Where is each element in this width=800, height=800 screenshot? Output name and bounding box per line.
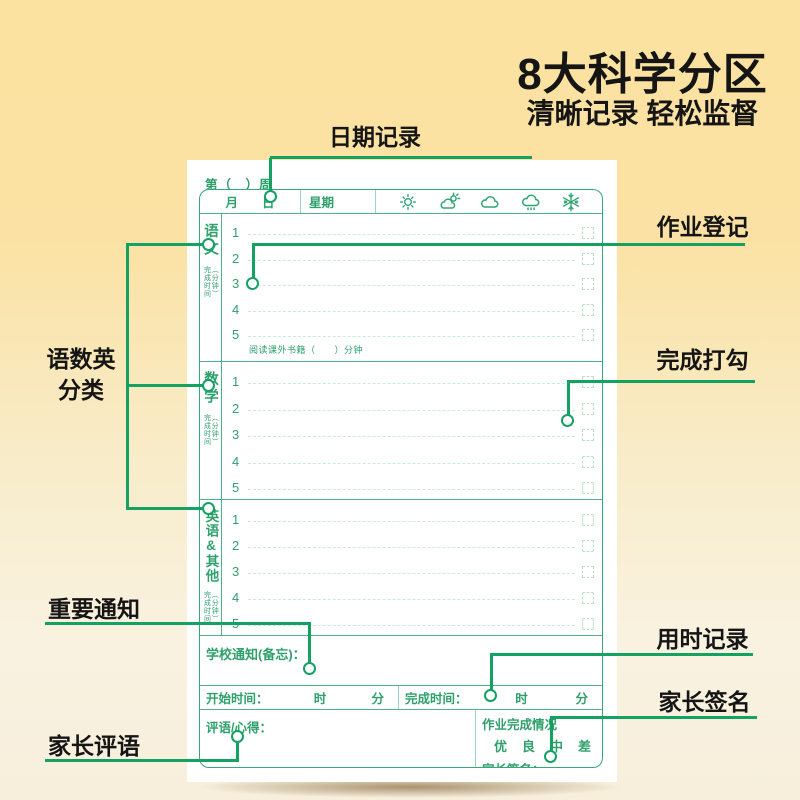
homework-row: 3 [222, 417, 602, 443]
callout-subjects-label: 语数英 分类 [25, 344, 137, 406]
homework-rows: 12345阅读课外书籍（ ）分钟 [222, 214, 602, 361]
row-number: 2 [232, 539, 246, 552]
write-line [248, 463, 575, 464]
callout-notice-connector [308, 624, 311, 663]
homework-row: 3 [222, 554, 602, 580]
option-good: 良 [522, 736, 535, 755]
snowflake-icon [561, 192, 581, 212]
checkbox-icon [582, 429, 594, 441]
callout-time-label: 用时记录 [640, 624, 765, 655]
homework-row: 2 [222, 390, 602, 416]
hour-label: 时 [515, 688, 528, 707]
start-time-label: 开始时间： [206, 688, 269, 707]
cloud-icon [478, 192, 502, 212]
callout-subjects-circle-1 [202, 238, 215, 251]
homework-row: 1 [222, 502, 602, 528]
callout-parent-sign-connector [550, 718, 553, 751]
callout-time-circle [484, 689, 497, 702]
end-time-cell: 完成时间： 时 分 [399, 686, 602, 709]
checkbox-icon [582, 253, 594, 265]
weekday-label: 星期 [309, 192, 334, 211]
row-number: 4 [232, 303, 246, 316]
write-line [248, 436, 575, 437]
write-line [248, 410, 575, 411]
callout-parent-sign-underline [550, 716, 757, 719]
row-number: 3 [232, 565, 246, 578]
callout-date-label: 日期记录 [280, 122, 470, 153]
checkbox-icon [582, 329, 594, 341]
callout-check-underline [567, 380, 755, 383]
time-note-unit: （分钟） [211, 266, 219, 298]
date-header-row: 月 日 星期 [200, 190, 602, 214]
homework-rows: 12345 [222, 500, 602, 635]
weekday-cell: 星期 [301, 190, 376, 213]
checkbox-icon [582, 482, 594, 494]
completion-options: 优 良 中 差 [482, 736, 602, 755]
row-number: 5 [232, 328, 246, 341]
sun-icon [397, 192, 419, 212]
month-day-cell: 月 日 [200, 190, 301, 213]
write-line [248, 547, 575, 548]
callout-parent-comment-circle [231, 730, 244, 743]
checkbox-icon [582, 227, 594, 239]
write-line [248, 260, 575, 261]
row-number: 4 [232, 455, 246, 468]
callout-homework-circle [246, 277, 259, 290]
write-line [248, 383, 575, 384]
callout-subjects-branch-3 [127, 507, 204, 510]
homework-row: 2 [222, 528, 602, 554]
hour-label: 时 [314, 688, 327, 707]
write-line [248, 625, 575, 626]
checkbox-icon [582, 566, 594, 578]
checkbox-icon [582, 540, 594, 552]
callout-parent-comment-label: 家长评语 [35, 731, 153, 762]
parent-sign-label: 家长签名： [482, 759, 602, 768]
row-number: 1 [232, 513, 246, 526]
callout-date-circle [264, 190, 277, 203]
row-number: 3 [232, 277, 246, 290]
write-line [248, 234, 575, 235]
section-english-labelcol: 英语&其他 完成时间 （分钟） [200, 500, 222, 635]
homework-row: 5 [222, 318, 602, 343]
time-note: 完成时间 （分钟） [203, 414, 218, 446]
row-number: 1 [232, 226, 246, 239]
time-note: 完成时间 （分钟） [203, 266, 218, 298]
school-notice-section: 学校通知(备忘)： [200, 636, 602, 686]
callout-subjects-circle-3 [202, 502, 215, 515]
minute-label: 分 [575, 688, 588, 707]
homework-row: 1 [222, 364, 602, 390]
checkbox-icon [582, 592, 594, 604]
write-line [248, 336, 575, 337]
callout-subjects-circle-2 [202, 379, 215, 392]
callout-notice-underline [45, 622, 311, 625]
write-line [248, 521, 575, 522]
time-note-text: 完成时间 [203, 266, 211, 298]
callout-notice-circle [303, 662, 316, 675]
callout-subjects-line2: 分类 [25, 375, 137, 406]
time-record-row: 开始时间： 时 分 完成时间： 时 分 [200, 686, 602, 710]
start-time-cell: 开始时间： 时 分 [200, 686, 399, 709]
checkbox-icon [582, 403, 594, 415]
bottom-row: 评语/心得： 作业完成情况 优 良 中 差 家长签名： [200, 710, 602, 768]
row-number: 3 [232, 428, 246, 441]
homework-row: 4 [222, 443, 602, 469]
write-line [248, 599, 575, 600]
option-poor: 差 [578, 736, 591, 755]
callout-parent-comment-connector [236, 743, 239, 760]
section-math: 数学 完成时间 （分钟） 12345 [200, 362, 602, 500]
section-english-other: 英语&其他 完成时间 （分钟） 12345 [200, 500, 602, 636]
callout-subjects-branch-1 [127, 243, 204, 246]
checkbox-icon [582, 278, 594, 290]
time-note-unit: （分钟） [211, 591, 219, 623]
checkbox-icon [582, 618, 594, 630]
callout-parent-sign-label: 家长签名 [642, 687, 767, 718]
callout-homework-label: 作业登记 [640, 212, 765, 243]
homework-row: 3 [222, 267, 602, 292]
option-excellent: 优 [494, 736, 507, 755]
callout-check-connector [567, 382, 570, 415]
homework-form: 月 日 星期 [199, 189, 603, 768]
time-note-text: 完成时间 [203, 414, 211, 446]
time-note-unit: （分钟） [211, 414, 219, 446]
sun-behind-cloud-icon [437, 192, 461, 212]
callout-time-connector [490, 655, 493, 690]
rain-cloud-icon [519, 192, 543, 212]
time-note-text: 完成时间 [203, 591, 211, 623]
homework-row: 5 [222, 606, 602, 632]
write-line [248, 489, 575, 490]
weather-cell [376, 190, 602, 213]
school-notice-label: 学校通知(备忘)： [206, 647, 306, 662]
callout-check-circle [561, 414, 574, 427]
homework-row: 4 [222, 580, 602, 606]
end-time-label: 完成时间： [405, 688, 468, 707]
homework-rows: 12345 [222, 362, 602, 499]
callout-subjects-line1: 语数英 [25, 344, 137, 375]
completion-cell: 作业完成情况 优 良 中 差 家长签名： [476, 710, 602, 768]
section-name: 英语&其他 [201, 509, 221, 583]
section-chinese: 语文 完成时间 （分钟） 12345阅读课外书籍（ ）分钟 [200, 214, 602, 362]
row-number: 4 [232, 591, 246, 604]
callout-parent-sign-circle [544, 750, 557, 763]
reading-note: 阅读课外书籍（ ）分钟 [222, 343, 602, 358]
callout-homework-underline [252, 243, 745, 246]
row-number: 5 [232, 481, 246, 494]
row-number: 1 [232, 375, 246, 388]
write-line [248, 285, 575, 286]
page-subtitle: 清晰记录 轻松监督 [495, 92, 790, 132]
callout-check-label: 完成打勾 [640, 345, 765, 376]
callout-subjects-trunk [126, 243, 129, 510]
month-label: 月 [225, 192, 238, 211]
write-line [248, 311, 575, 312]
callout-notice-label: 重要通知 [35, 594, 153, 625]
homework-row: 4 [222, 292, 602, 317]
write-line [248, 573, 575, 574]
homework-row: 5 [222, 470, 602, 496]
callout-parent-comment-underline [45, 759, 239, 762]
callout-date-underline [270, 156, 532, 159]
minute-label: 分 [371, 688, 384, 707]
callout-homework-connector [252, 245, 255, 278]
callout-time-underline [490, 653, 753, 656]
section-chinese-labelcol: 语文 完成时间 （分钟） [200, 214, 222, 361]
callout-date-connector [269, 158, 272, 192]
homework-row: 1 [222, 216, 602, 241]
checkbox-icon [582, 456, 594, 468]
row-number: 2 [232, 252, 246, 265]
callout-subjects-branch-2 [127, 384, 204, 387]
checkbox-icon [582, 514, 594, 526]
checkbox-icon [582, 304, 594, 316]
row-number: 2 [232, 402, 246, 415]
time-note: 完成时间 （分钟） [203, 591, 218, 623]
